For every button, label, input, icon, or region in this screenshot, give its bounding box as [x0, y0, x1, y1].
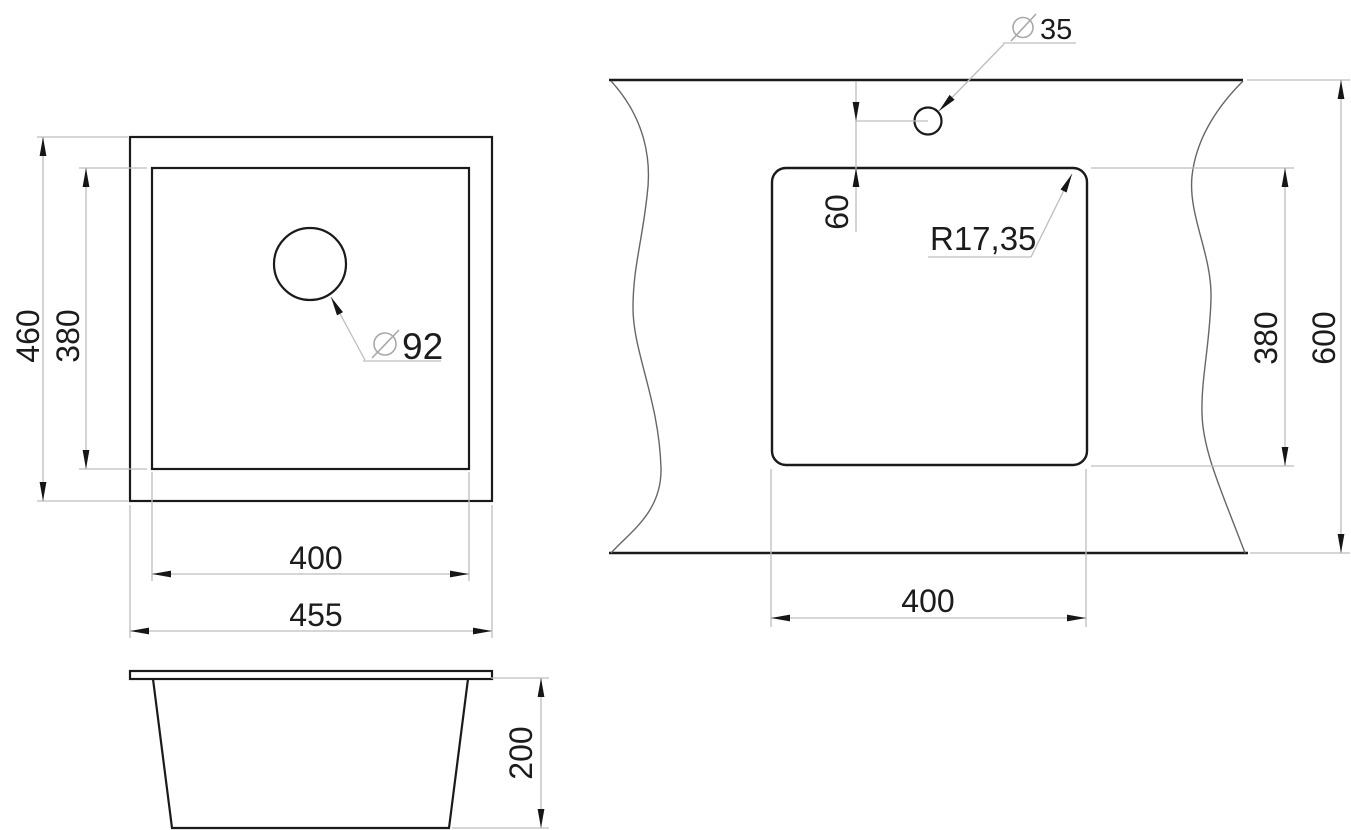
dim-label-faucet-diameter: 35	[1040, 14, 1072, 46]
canvas-background	[0, 0, 1351, 830]
dim-label-basin-width: 400	[289, 540, 342, 576]
dim-label-cutout-height: 380	[1248, 311, 1284, 364]
dim-label-corner-radius: R17,35	[930, 220, 1036, 257]
dim-label-bowl-depth: 200	[503, 726, 539, 779]
sink-technical-drawing: 92 460 380 400	[0, 0, 1351, 830]
dim-label-overall-height: 460	[10, 309, 46, 362]
dim-label-faucet-offset: 60	[819, 194, 855, 230]
dim-label-cutout-width: 400	[901, 583, 954, 619]
dim-label-worktop-depth: 600	[1306, 311, 1342, 364]
dim-label-drain-diameter: 92	[402, 326, 443, 367]
technical-drawing-canvas: 92 460 380 400	[0, 0, 1351, 830]
dim-label-basin-height: 380	[50, 309, 86, 362]
dim-label-overall-width: 455	[289, 597, 342, 633]
